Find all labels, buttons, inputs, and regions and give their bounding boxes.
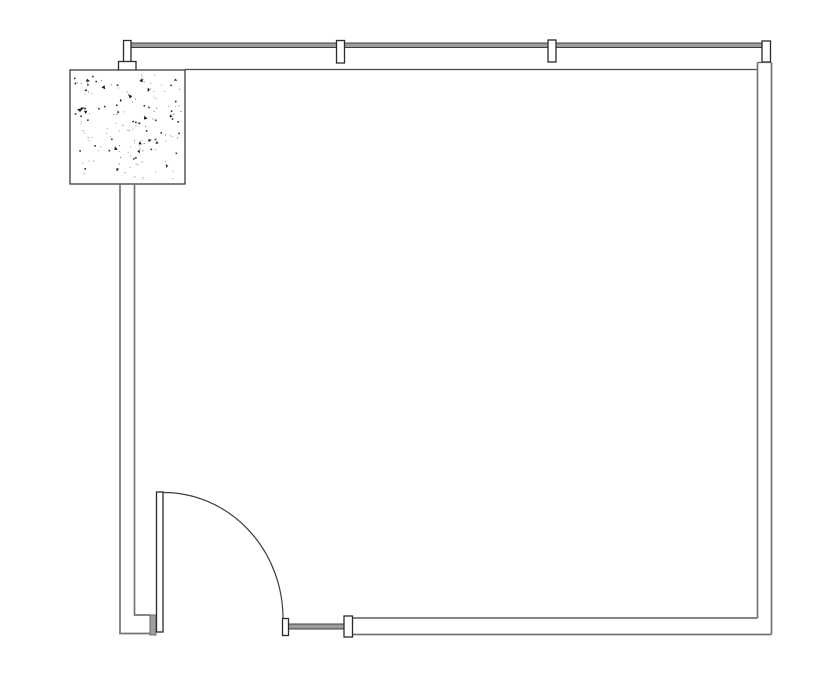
floorplan-canvas: [0, 0, 835, 678]
bottom-sidelight-band: [289, 624, 345, 629]
floorplan-svg: [0, 0, 835, 678]
left-wall-inner-line: [135, 184, 151, 615]
window-mullion-1: [124, 41, 132, 63]
window-mullion-3: [548, 40, 556, 62]
window-mullion-1-cap: [119, 62, 137, 71]
window-mullion-4: [762, 41, 771, 62]
window-mullion-2: [337, 41, 345, 64]
concrete-column: [70, 70, 185, 184]
door-hinge-jamb: [150, 615, 156, 635]
top-glazing-band: [128, 43, 762, 48]
door-swing-arc: [164, 493, 284, 619]
door-leaf: [157, 492, 164, 632]
bottom-wall-end-mullion: [344, 616, 353, 637]
door-strike-jamb: [283, 619, 289, 636]
